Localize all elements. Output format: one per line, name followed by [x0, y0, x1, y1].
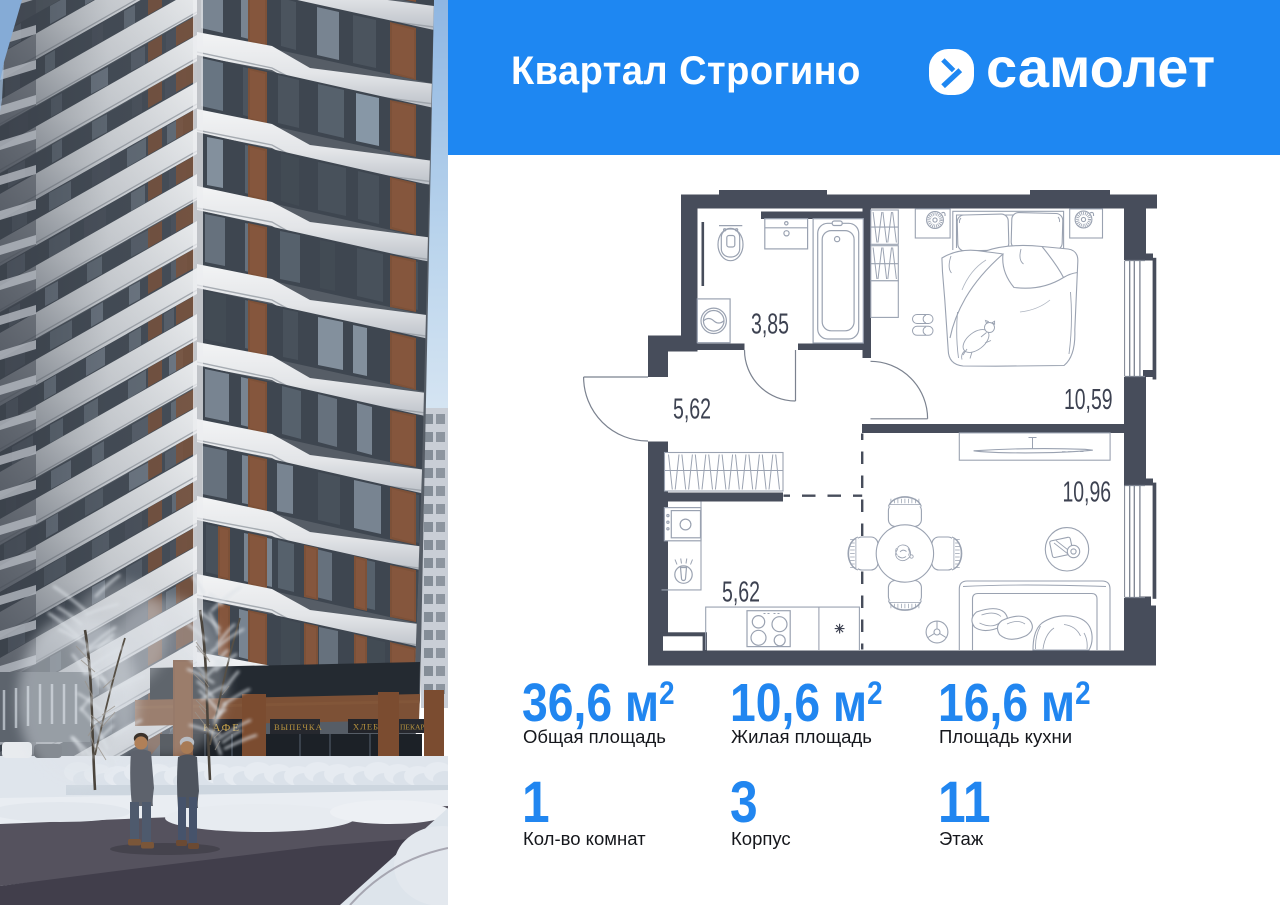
svg-text:5,62: 5,62 [673, 394, 711, 426]
svg-text:3,85: 3,85 [751, 309, 789, 341]
svg-text:ХЛЕБ: ХЛЕБ [353, 722, 379, 732]
svg-text:ВЫПЕЧКА: ВЫПЕЧКА [274, 722, 323, 732]
svg-text:10,96: 10,96 [1063, 477, 1112, 509]
svg-text:5,62: 5,62 [722, 577, 760, 609]
svg-text:10,59: 10,59 [1064, 384, 1113, 416]
